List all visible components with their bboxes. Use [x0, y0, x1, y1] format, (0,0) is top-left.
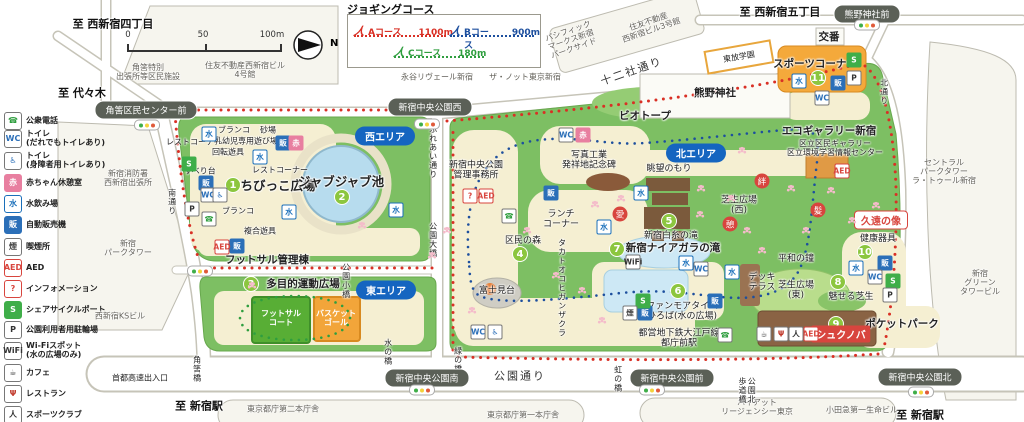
cherry-blossom-icon — [361, 225, 364, 228]
baby-room-icon: 赤 — [576, 128, 591, 143]
legend-item-label: トイレ (だれでもトイレあり) — [26, 130, 105, 148]
cherry-blossom-icon — [699, 214, 702, 217]
toilet-icon: WC — [815, 91, 830, 106]
bicycle-parking-icon: P — [847, 71, 862, 86]
public-phone-icon: ☎ — [718, 328, 733, 343]
legend-item: ♿トイレ (身障者用トイレあり) — [4, 152, 105, 170]
legend-item-label: 水飲み場 — [26, 200, 58, 209]
cherry-blossom-icon — [790, 188, 793, 191]
legend-item: 赤赤ちゃん休憩室 — [4, 174, 82, 192]
aed-icon: AED — [835, 164, 850, 179]
sculpture-marker: 愛 — [613, 207, 628, 222]
public-phone-icon: ☎ — [202, 212, 217, 227]
vending-machine-icon: 販 — [230, 239, 245, 254]
traffic-light-icon — [134, 120, 160, 131]
cherry-blossom-icon — [741, 150, 744, 153]
toilet-icon: WC — [559, 128, 574, 143]
course-dotted-line — [354, 35, 446, 37]
vending-machine-icon: 販 — [544, 186, 559, 201]
sculpture-marker: 髪 — [811, 203, 826, 218]
information-icon: ? — [4, 280, 22, 298]
cherry-blossom-icon — [700, 188, 703, 191]
scale-bar — [127, 44, 282, 52]
numbered-marker: 8 — [830, 274, 846, 290]
cherry-blossom-icon — [431, 255, 434, 258]
vending-machine-icon: 販 — [4, 216, 22, 234]
bicycle-parking-icon: P — [883, 288, 898, 303]
legend-item: WiFiWi-Fiスポット (水の広場のみ) — [4, 342, 81, 360]
wifi-icon: WiFi — [626, 255, 641, 270]
numbered-marker: 4 — [512, 246, 528, 262]
area-badge: 北エリア — [666, 144, 726, 163]
cafe-icon: ☕ — [757, 327, 772, 342]
baby-room-icon: 赤 — [4, 174, 22, 192]
bus-stop-badge: 角筈区民センター前 — [94, 101, 197, 120]
legend-item-label: シェアサイクルポート — [26, 306, 106, 315]
map-label-red: シュクノバ — [811, 326, 870, 343]
cherry-blossom-icon — [730, 198, 733, 201]
share-cycle-icon: S — [847, 53, 862, 68]
restaurant-icon: Ψ — [4, 385, 22, 403]
bicycle-parking-icon: P — [185, 202, 200, 217]
traffic-light-icon — [639, 385, 665, 396]
drinking-fountain-icon: 水 — [725, 265, 740, 280]
area-badge: 東エリア — [356, 281, 416, 300]
drinking-fountain-icon: 水 — [679, 256, 694, 271]
drinking-fountain-icon: 水 — [849, 261, 864, 276]
drinking-fountain-icon: 水 — [792, 74, 807, 89]
drinking-fountain-icon: 水 — [282, 205, 297, 220]
drinking-fountain-icon: 水 — [253, 150, 268, 165]
vending-machine-icon: 販 — [878, 256, 893, 271]
accessible-toilet-icon: ♿ — [488, 325, 503, 340]
aed-icon: AED — [804, 327, 819, 342]
legend-item: Sシェアサイクルポート — [4, 301, 106, 319]
cherry-blossom-icon — [761, 250, 764, 253]
legend-item: ☕カフェ — [4, 364, 50, 382]
cherry-blossom-icon — [594, 204, 597, 207]
compass-icon — [291, 28, 325, 62]
map-label-red: 久遠の像 — [854, 211, 908, 230]
cherry-blossom-icon — [471, 310, 474, 313]
legend-item-label: スポーツクラブ — [26, 411, 82, 420]
legend-item-label: インフォメーション — [26, 285, 98, 294]
sports-club-icon: 人 — [4, 406, 22, 422]
share-cycle-icon: S — [4, 301, 22, 319]
drinking-fountain-icon: 水 — [389, 203, 404, 218]
drinking-fountain-icon: 水 — [597, 220, 612, 235]
vending-machine-icon: 販 — [708, 294, 723, 309]
toilet-icon: WC — [868, 270, 883, 285]
traffic-light-icon — [187, 266, 213, 277]
numbered-marker: 10 — [857, 244, 873, 260]
cherry-blossom-icon — [620, 198, 623, 201]
legend-item: ☎公衆電話 — [4, 112, 58, 130]
toilet-icon: WC — [694, 262, 709, 277]
restaurant-icon: Ψ — [774, 327, 789, 342]
public-phone-icon: ☎ — [4, 112, 22, 130]
scale-tick: 100m — [260, 30, 285, 40]
aed-icon: AED — [4, 259, 22, 277]
cherry-blossom-icon — [555, 275, 558, 278]
share-cycle-icon: S — [182, 157, 197, 172]
sports-club-icon: 人 — [789, 327, 804, 342]
accessible-toilet-icon: ♿ — [213, 188, 228, 203]
bicycle-parking-icon: P — [4, 321, 22, 339]
legend-item: 煙喫煙所 — [4, 238, 50, 256]
numbered-marker: 11 — [810, 70, 826, 86]
aed-icon: AED — [215, 240, 230, 255]
legend-item: 人スポーツクラブ — [4, 406, 82, 422]
legend-item: 販自動販売機 — [4, 216, 66, 234]
cherry-blossom-icon — [805, 230, 808, 233]
compass-north-label: N — [330, 38, 338, 49]
accessible-toilet-icon: ♿ — [4, 152, 22, 170]
legend-item-label: 公園利用者用駐輪場 — [26, 326, 98, 335]
traffic-light-icon — [854, 20, 880, 31]
legend-item: ?インフォメーション — [4, 280, 98, 298]
legend-item-label: 公衆電話 — [26, 117, 58, 126]
traffic-light-icon — [908, 387, 934, 398]
legend-item-label: AED — [26, 264, 44, 273]
legend-item-label: Wi-Fiスポット (水の広場のみ) — [26, 342, 81, 360]
legend-item-label: レストラン — [26, 390, 66, 399]
jogging-course-box: 人Aコース1100m人Bコース900m人Cコース180m — [347, 14, 541, 68]
area-badge: 西エリア — [355, 127, 415, 146]
numbered-marker: 6 — [670, 283, 686, 299]
cherry-blossom-icon — [446, 230, 449, 233]
legend-item-label: 喫煙所 — [26, 243, 50, 252]
numbered-marker: 7 — [609, 241, 625, 257]
park-guide-map: 0 50 100m N ジョギングコース 人Aコース1100m人Bコース900m… — [0, 0, 1024, 422]
legend-item-label: カフェ — [26, 369, 50, 378]
legend-item-label: 自動販売機 — [26, 221, 66, 230]
traffic-light-icon — [409, 385, 435, 396]
cherry-blossom-icon — [251, 285, 254, 288]
cherry-blossom-icon — [581, 290, 584, 293]
cherry-blossom-icon — [746, 230, 749, 233]
baby-room-icon: 赤 — [289, 136, 304, 151]
legend-item: AEDAED — [4, 259, 44, 277]
traffic-light-icon — [414, 119, 440, 130]
cherry-blossom-icon — [526, 230, 529, 233]
cafe-icon: ☕ — [4, 364, 22, 382]
legend-item: P公園利用者用駐輪場 — [4, 321, 98, 339]
vending-machine-icon: 販 — [831, 76, 846, 91]
bus-stop-badge: 新宿中央公園西 — [387, 98, 472, 117]
legend-item: 水水飲み場 — [4, 195, 58, 213]
legend-item: Ψレストラン — [4, 385, 66, 403]
smoking-area-icon: 煙 — [623, 306, 638, 321]
legend-item-label: 赤ちゃん休憩室 — [26, 179, 82, 188]
course-dotted-line — [450, 35, 534, 37]
bus-stop-badge: 新宿中央公園北 — [877, 368, 962, 387]
drinking-fountain-icon: 水 — [202, 127, 217, 142]
wifi-icon: WiFi — [4, 342, 22, 360]
information-icon: ? — [463, 189, 478, 204]
share-cycle-icon: S — [636, 294, 651, 309]
drinking-fountain-icon: 水 — [634, 186, 649, 201]
toilet-icon: WC — [471, 325, 486, 340]
drinking-fountain-icon: 水 — [4, 195, 22, 213]
cherry-blossom-icon — [830, 190, 833, 193]
sculpture-marker: 憩 — [723, 217, 738, 232]
cherry-blossom-icon — [875, 205, 878, 208]
cherry-blossom-icon — [601, 320, 604, 323]
scale-tick: 50 — [198, 30, 209, 40]
numbered-marker: 5 — [661, 213, 677, 229]
smoking-area-icon: 煙 — [4, 238, 22, 256]
toilet-icon: WC — [4, 130, 22, 148]
sculpture-marker: 絆 — [755, 174, 770, 189]
scale-tick: 0 — [125, 30, 130, 40]
legend-item: WCトイレ (だれでもトイレあり) — [4, 130, 105, 148]
cherry-blossom-icon — [851, 220, 854, 223]
public-phone-icon: ☎ — [502, 209, 517, 224]
aed-icon: AED — [479, 189, 494, 204]
share-cycle-icon: S — [886, 274, 901, 289]
numbered-marker: 2 — [334, 189, 350, 205]
course-dotted-line — [394, 56, 484, 58]
legend-item-label: トイレ (身障者用トイレあり) — [26, 152, 105, 170]
